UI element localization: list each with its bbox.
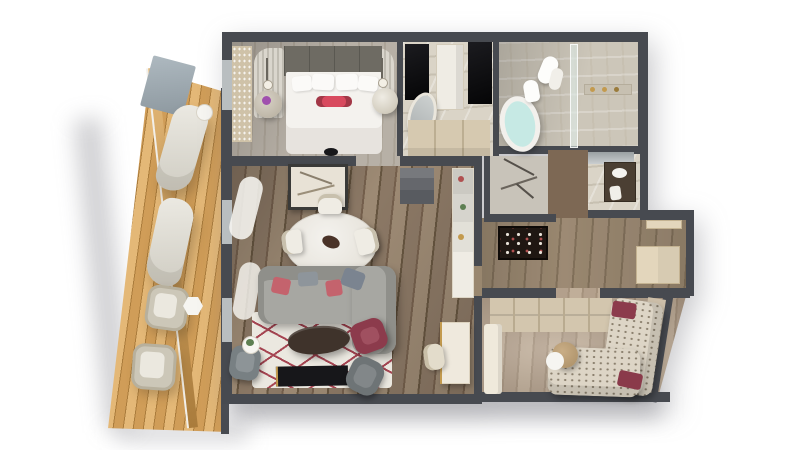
- media-console: [276, 365, 348, 386]
- wall-bottom-living: [222, 394, 482, 404]
- pendant-lamp-cord: [266, 58, 268, 82]
- pendant-lamp: [378, 78, 388, 88]
- burgundy-cushion: [611, 300, 637, 319]
- wall-vanity-right: [640, 146, 648, 218]
- crimson-bolster: [316, 96, 352, 107]
- tall-wardrobe: [436, 44, 464, 110]
- shimmer-wardrobe: [232, 46, 252, 142]
- pendant-lamp: [263, 80, 273, 90]
- floral-artwork: [498, 226, 548, 260]
- closet-shelving: [490, 298, 612, 332]
- bench-console: [484, 324, 502, 394]
- dining-chair: [318, 194, 342, 214]
- wall-powder-bottom: [484, 214, 556, 222]
- white-display-column: [452, 168, 474, 298]
- dark-mirror-panel: [468, 42, 492, 104]
- pillow: [312, 73, 335, 90]
- desk-chair: [422, 343, 445, 372]
- floorplan-render: [0, 0, 800, 450]
- chair-seat: [359, 325, 381, 346]
- shelf-decor: [460, 204, 466, 210]
- pillow: [357, 75, 379, 92]
- wall-hall-right: [686, 210, 694, 296]
- purple-flowers: [262, 96, 271, 105]
- toiletry-bottle: [590, 87, 595, 92]
- suite-unit: [0, 0, 800, 450]
- chair-seat: [235, 351, 256, 373]
- window-living: [222, 298, 232, 342]
- chair-seat: [351, 362, 379, 391]
- nightstand: [372, 88, 398, 114]
- wall-wood-block: [548, 150, 588, 218]
- wall-top: [222, 32, 648, 42]
- round-side-table-lower: [546, 352, 564, 370]
- toiletry-bottle: [614, 87, 619, 92]
- room-powder: [490, 156, 548, 214]
- art-stroke: [300, 171, 333, 185]
- hand-towel: [609, 185, 622, 200]
- etched-art-line: [516, 183, 534, 199]
- shelf-decor: [458, 234, 464, 240]
- entrance-door: [646, 220, 682, 229]
- wall-powder-left: [484, 156, 490, 222]
- black-ottoman: [324, 148, 338, 156]
- dining-chair: [281, 229, 303, 255]
- writing-desk: [440, 322, 470, 384]
- potted-plant: [246, 339, 254, 346]
- window-bedroom: [222, 60, 232, 110]
- washbasin: [612, 168, 627, 178]
- low-dresser: [408, 120, 490, 156]
- wall-bathroom-right: [638, 32, 648, 154]
- pillow: [291, 75, 312, 92]
- wall-bedroom-living: [222, 156, 474, 166]
- slate-cushion: [298, 271, 319, 286]
- closet-doors: [636, 246, 680, 284]
- pillow: [336, 73, 359, 90]
- shelf-decor: [458, 176, 464, 182]
- toiletry-bottle: [602, 87, 607, 92]
- dark-display-shelf: [400, 168, 434, 204]
- etched-art-line: [504, 158, 535, 176]
- coral-cushion: [271, 276, 292, 295]
- doorway-living-hall: [474, 266, 482, 296]
- wall-vanity-bottom: [588, 210, 640, 218]
- pendant-lamp-cord: [381, 58, 383, 80]
- wall-dressing-bathroom: [493, 32, 499, 156]
- doorway-bedroom: [356, 156, 400, 166]
- doorway-bed2: [556, 288, 600, 298]
- shower-glass-screen: [570, 44, 578, 148]
